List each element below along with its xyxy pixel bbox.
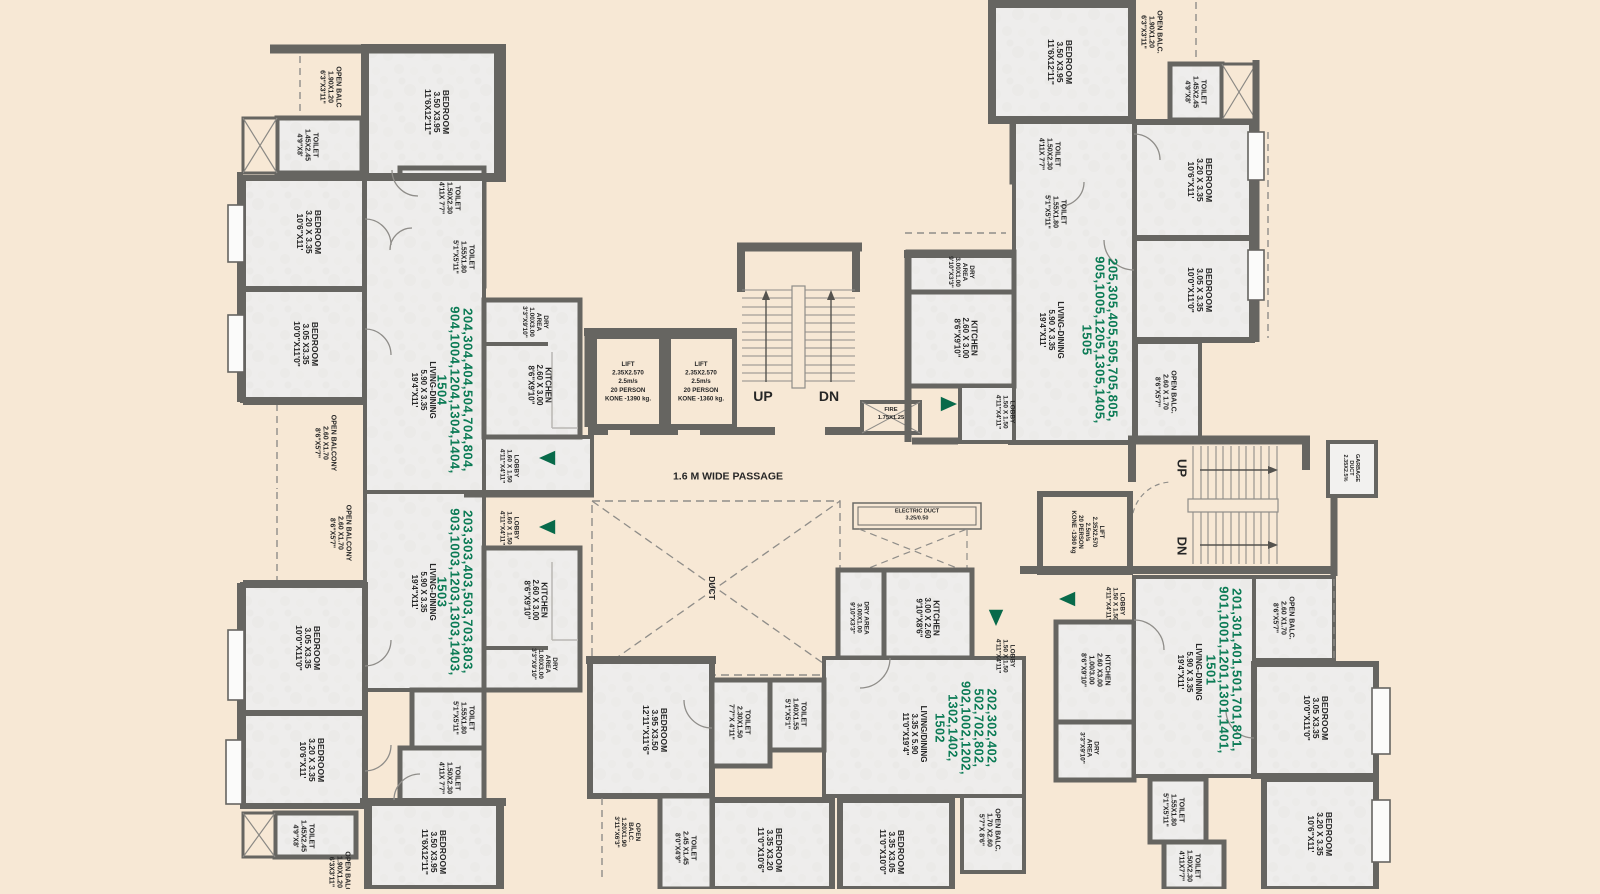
svg-text:OPEN BALC.1.90X1.206'3"X3'11": OPEN BALC.1.90X1.206'3"X3'11" — [1140, 10, 1163, 53]
svg-text:TOILET2.45 X1.458'0"X4'9": TOILET2.45 X1.458'0"X4'9" — [674, 831, 697, 865]
svg-text:KITCHEN2.60 X 3.008'6"X9'10": KITCHEN2.60 X 3.008'6"X9'10" — [527, 365, 553, 406]
svg-text:TOILET1.50X2.304'11X 7'7": TOILET1.50X2.304'11X 7'7" — [1038, 138, 1061, 170]
svg-text:BEDROOM3.20 X 3.3510'6"X11': BEDROOM3.20 X 3.3510'6"X11' — [295, 210, 323, 254]
svg-text:BEDROOM3.20 X 3.3510'6"X11': BEDROOM3.20 X 3.3510'6"X11' — [1306, 812, 1334, 856]
svg-text:KITCHEN2.60 X 3.008'6"X9'10": KITCHEN2.60 X 3.008'6"X9'10" — [953, 318, 979, 359]
svg-text:KITCHEN2.60 X 3.008'6"X9'10": KITCHEN2.60 X 3.008'6"X9'10" — [523, 580, 549, 621]
svg-text:DUCT: DUCT — [707, 576, 717, 600]
svg-text:TOILET1.55X1.805'1"X5'11": TOILET1.55X1.805'1"X5'11" — [452, 701, 475, 735]
svg-text:TOILET1.55X1.805'1"X5'11": TOILET1.55X1.805'1"X5'11" — [1162, 793, 1185, 827]
svg-text:UP: UP — [1175, 459, 1190, 477]
svg-text:TOILET1.55X1.805'1"X5'11": TOILET1.55X1.805'1"X5'11" — [1044, 195, 1067, 229]
svg-text:TOILET1.45X2.454'9"X8': TOILET1.45X2.454'9"X8' — [292, 820, 315, 852]
svg-text:OPEN BALC1.90X1.206'3X3'11": OPEN BALC1.90X1.206'3X3'11" — [328, 851, 351, 889]
svg-text:BEDROOM3.20 X 3.3510'6"X11': BEDROOM3.20 X 3.3510'6"X11' — [1186, 158, 1214, 202]
svg-text:LIVING/DINING3.35 X 5.9011'0"X: LIVING/DINING3.35 X 5.9011'0"X19'4" — [901, 706, 928, 763]
svg-text:BEDROOM3.50 X3.9511'6X12'11": BEDROOM3.50 X3.9511'6X12'11" — [423, 89, 451, 135]
svg-text:KITCHEN3.00 X 2.609'10"X8'6": KITCHEN3.00 X 2.609'10"X8'6" — [915, 598, 941, 639]
svg-text:BEDROOM3.05 X3.3510'0"X11'0": BEDROOM3.05 X3.3510'0"X11'0" — [294, 625, 322, 671]
svg-text:TOILET1.50X2.304'11X 7'7": TOILET1.50X2.304'11X 7'7" — [438, 182, 461, 214]
svg-text:TOILET1.60X1.555'1"X5'1": TOILET1.60X1.555'1"X5'1" — [784, 698, 807, 730]
svg-text:BEDROOM3.35 X3.2011'0"X10'6": BEDROOM3.35 X3.2011'0"X10'6" — [756, 827, 784, 873]
svg-text:DN: DN — [819, 388, 839, 404]
svg-text:DN: DN — [1175, 537, 1190, 556]
svg-text:BEDROOM3.50 X3.9511'6X12'11": BEDROOM3.50 X3.9511'6X12'11" — [420, 829, 448, 875]
svg-text:BEDROOM3.05 X3.3510'0"X11'0": BEDROOM3.05 X3.3510'0"X11'0" — [1302, 695, 1330, 741]
svg-text:BEDROOM3.35 X3.0511'0"X10'0": BEDROOM3.35 X3.0511'0"X10'0" — [878, 829, 906, 875]
svg-text:TOILET1.45X2.454'9"X8': TOILET1.45X2.454'9"X8' — [296, 129, 319, 161]
svg-text:BEDROOM3.20 X 3.3510'6"X11': BEDROOM3.20 X 3.3510'6"X11' — [298, 738, 326, 782]
svg-text:1.6 M WIDE PASSAGE: 1.6 M WIDE PASSAGE — [673, 471, 783, 483]
svg-text:TOILET1.50X2.304'11X7'7": TOILET1.50X2.304'11X7'7" — [1178, 850, 1201, 882]
svg-text:UP: UP — [753, 388, 772, 404]
svg-text:OPEN BALC1.90X1.206'3"X3'11": OPEN BALC1.90X1.206'3"X3'11" — [319, 66, 342, 107]
svg-text:DRY AREA3.00X1.009'10"X3'3": DRY AREA3.00X1.009'10"X3'3" — [849, 601, 870, 635]
svg-text:BEDROOM3.95 X3.5012'11"X11'6": BEDROOM3.95 X3.5012'11"X11'6" — [641, 705, 669, 755]
svg-text:TOILET1.55X1.805'1"X5'11": TOILET1.55X1.805'1"X5'11" — [452, 240, 475, 274]
svg-text:BEDROOM3.05 X3.3510'0"X11'0": BEDROOM3.05 X3.3510'0"X11'0" — [292, 321, 320, 367]
svg-text:BEDROOM3.05 X 3.3510'0"X11'0": BEDROOM3.05 X 3.3510'0"X11'0" — [1186, 267, 1214, 313]
svg-text:BEDROOM3.50 X3.9511'6X12'11": BEDROOM3.50 X3.9511'6X12'11" — [1046, 39, 1074, 85]
svg-text:TOILET1.45X2.454'9"X8': TOILET1.45X2.454'9"X8' — [1184, 76, 1207, 108]
svg-text:OPEN BALC.1.70 X2.605'7"X 8'6": OPEN BALC.1.70 X2.605'7"X 8'6" — [978, 808, 1001, 851]
svg-text:TOILET1.50X2.304'11X 7'7": TOILET1.50X2.304'11X 7'7" — [438, 762, 461, 794]
svg-text:KITCHEN2.60 X3.001.00/3.008'6": KITCHEN2.60 X3.001.00/3.008'6"X9'10" — [1080, 653, 1111, 687]
